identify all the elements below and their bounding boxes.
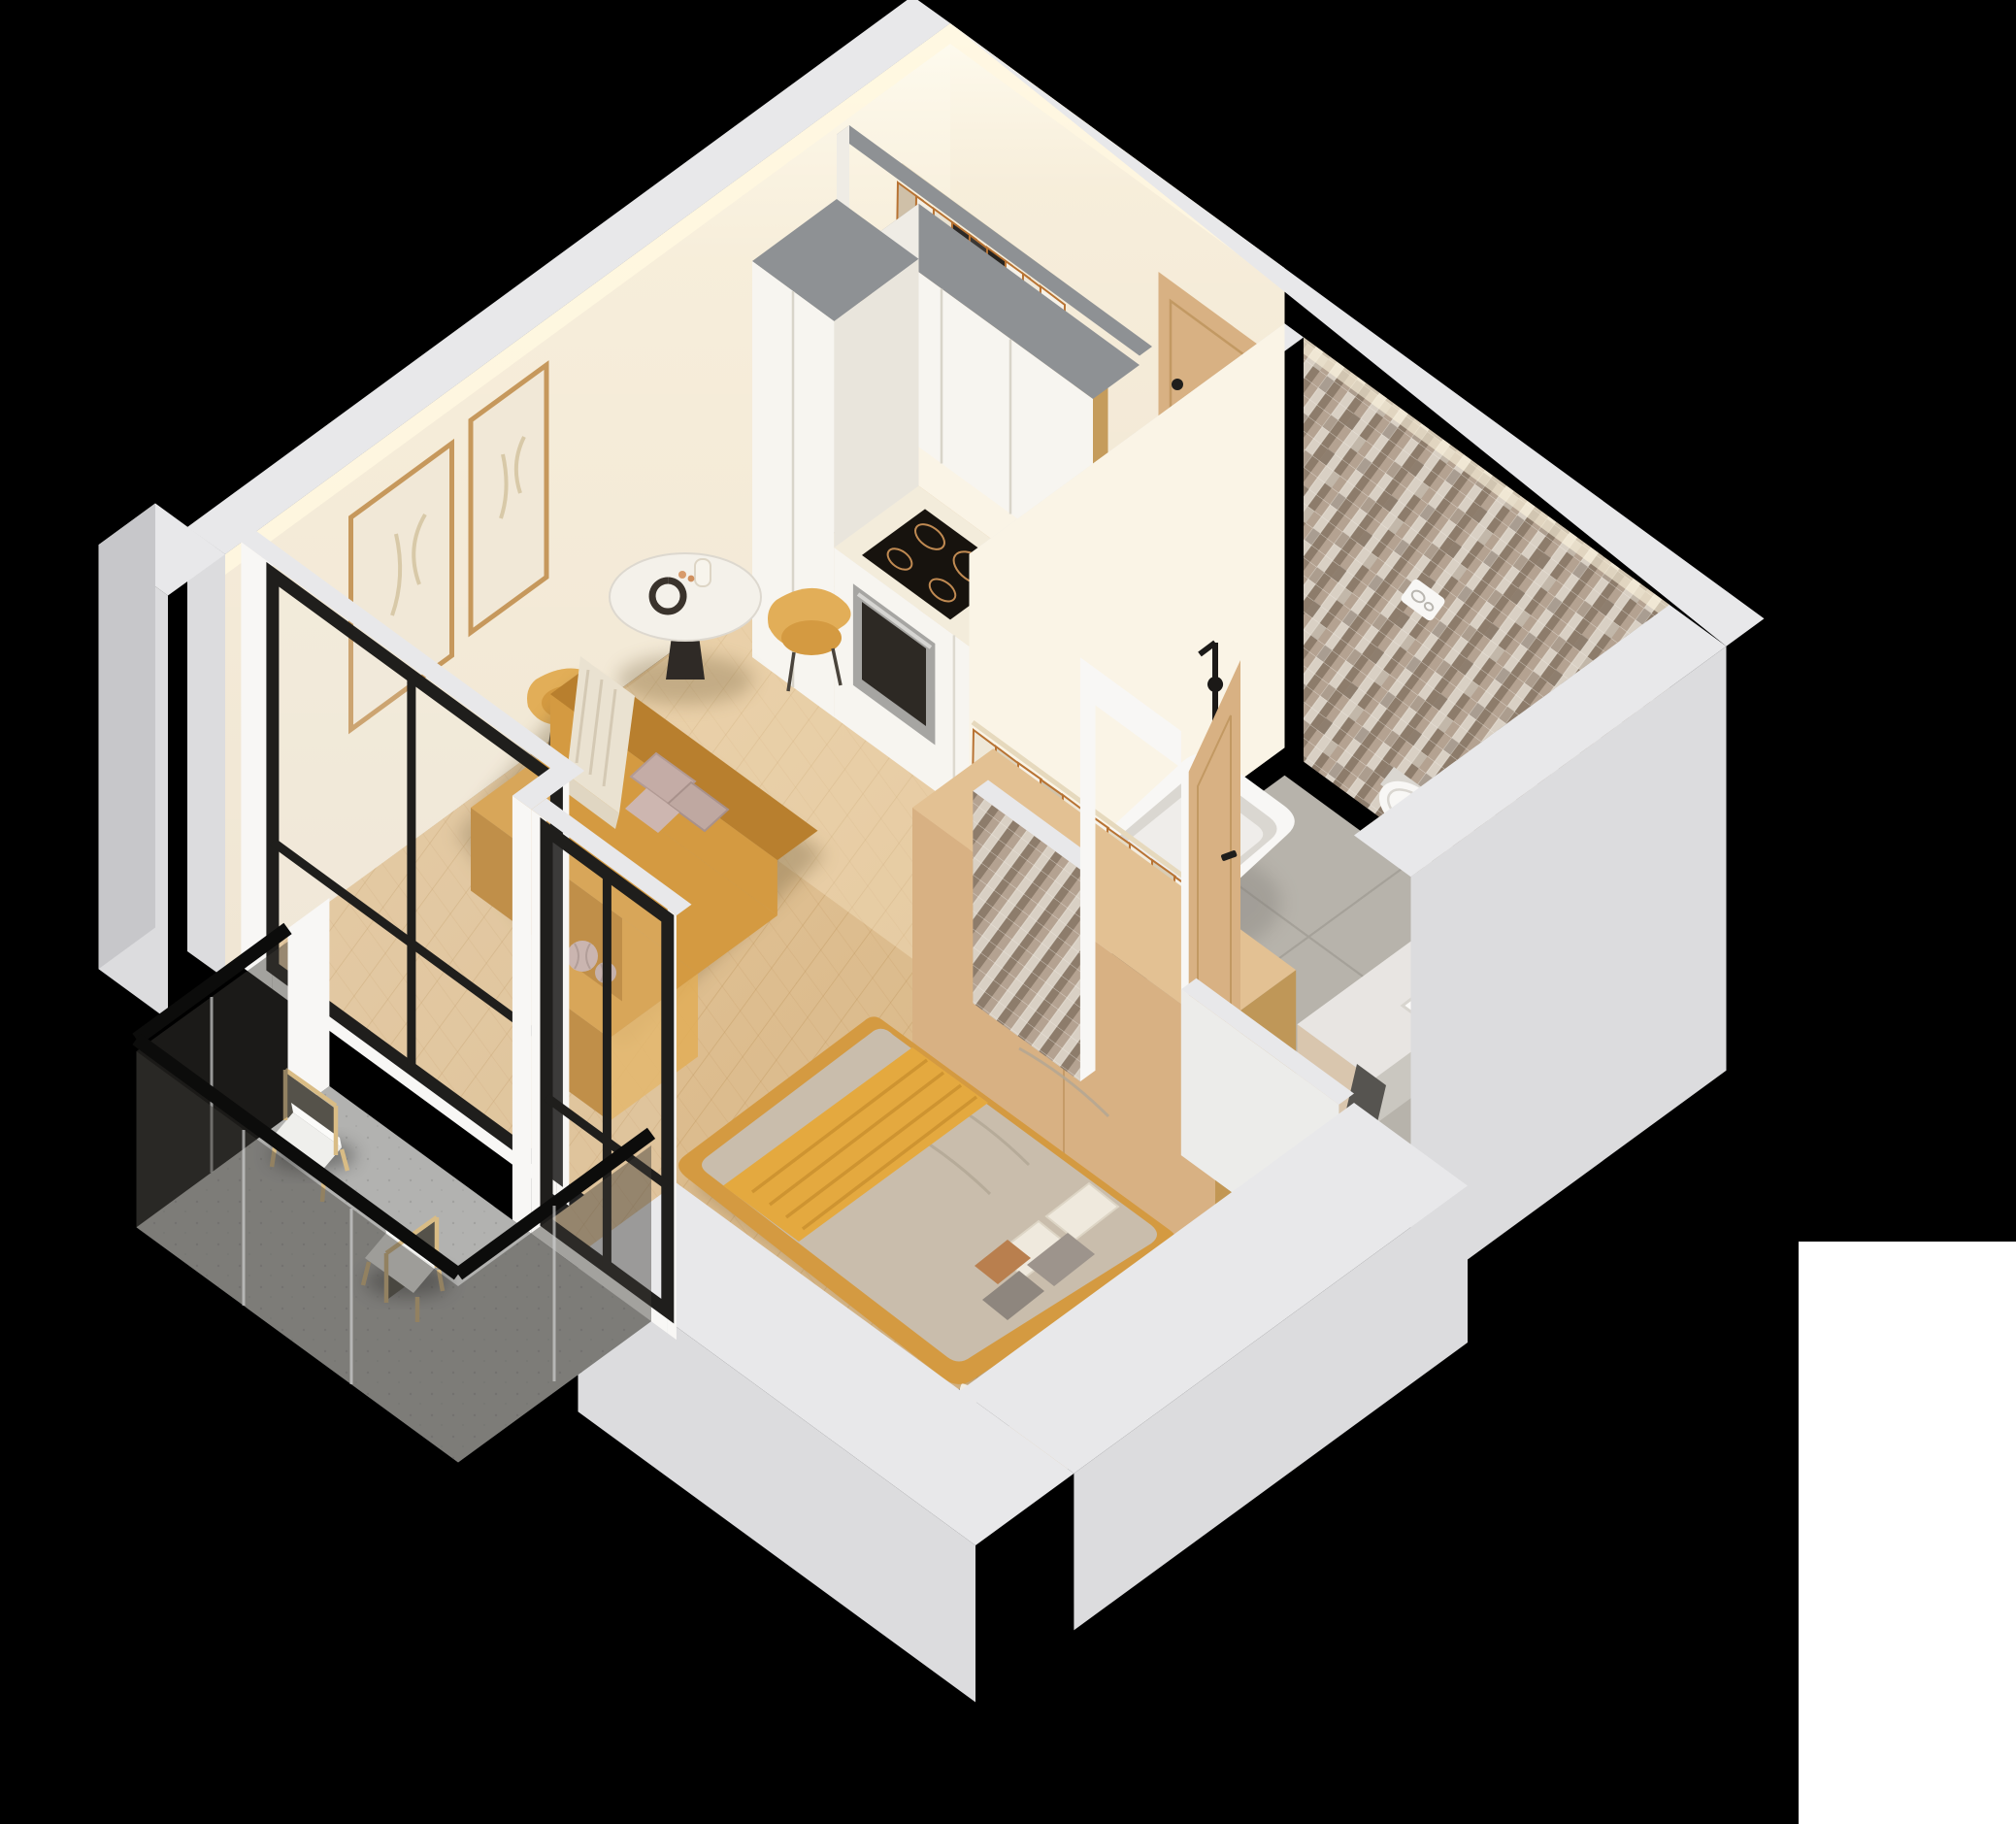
- table-vase: [695, 559, 711, 586]
- render-stage: [0, 0, 2016, 1824]
- nw-wall-outer-face: [187, 527, 225, 978]
- door-peephole: [1172, 379, 1183, 390]
- watermark-block: [1799, 1242, 2016, 1824]
- west-cap-side: [99, 504, 156, 970]
- floor-plan-render: [0, 0, 2016, 1824]
- bath-doorframe-left: [1080, 683, 1096, 1081]
